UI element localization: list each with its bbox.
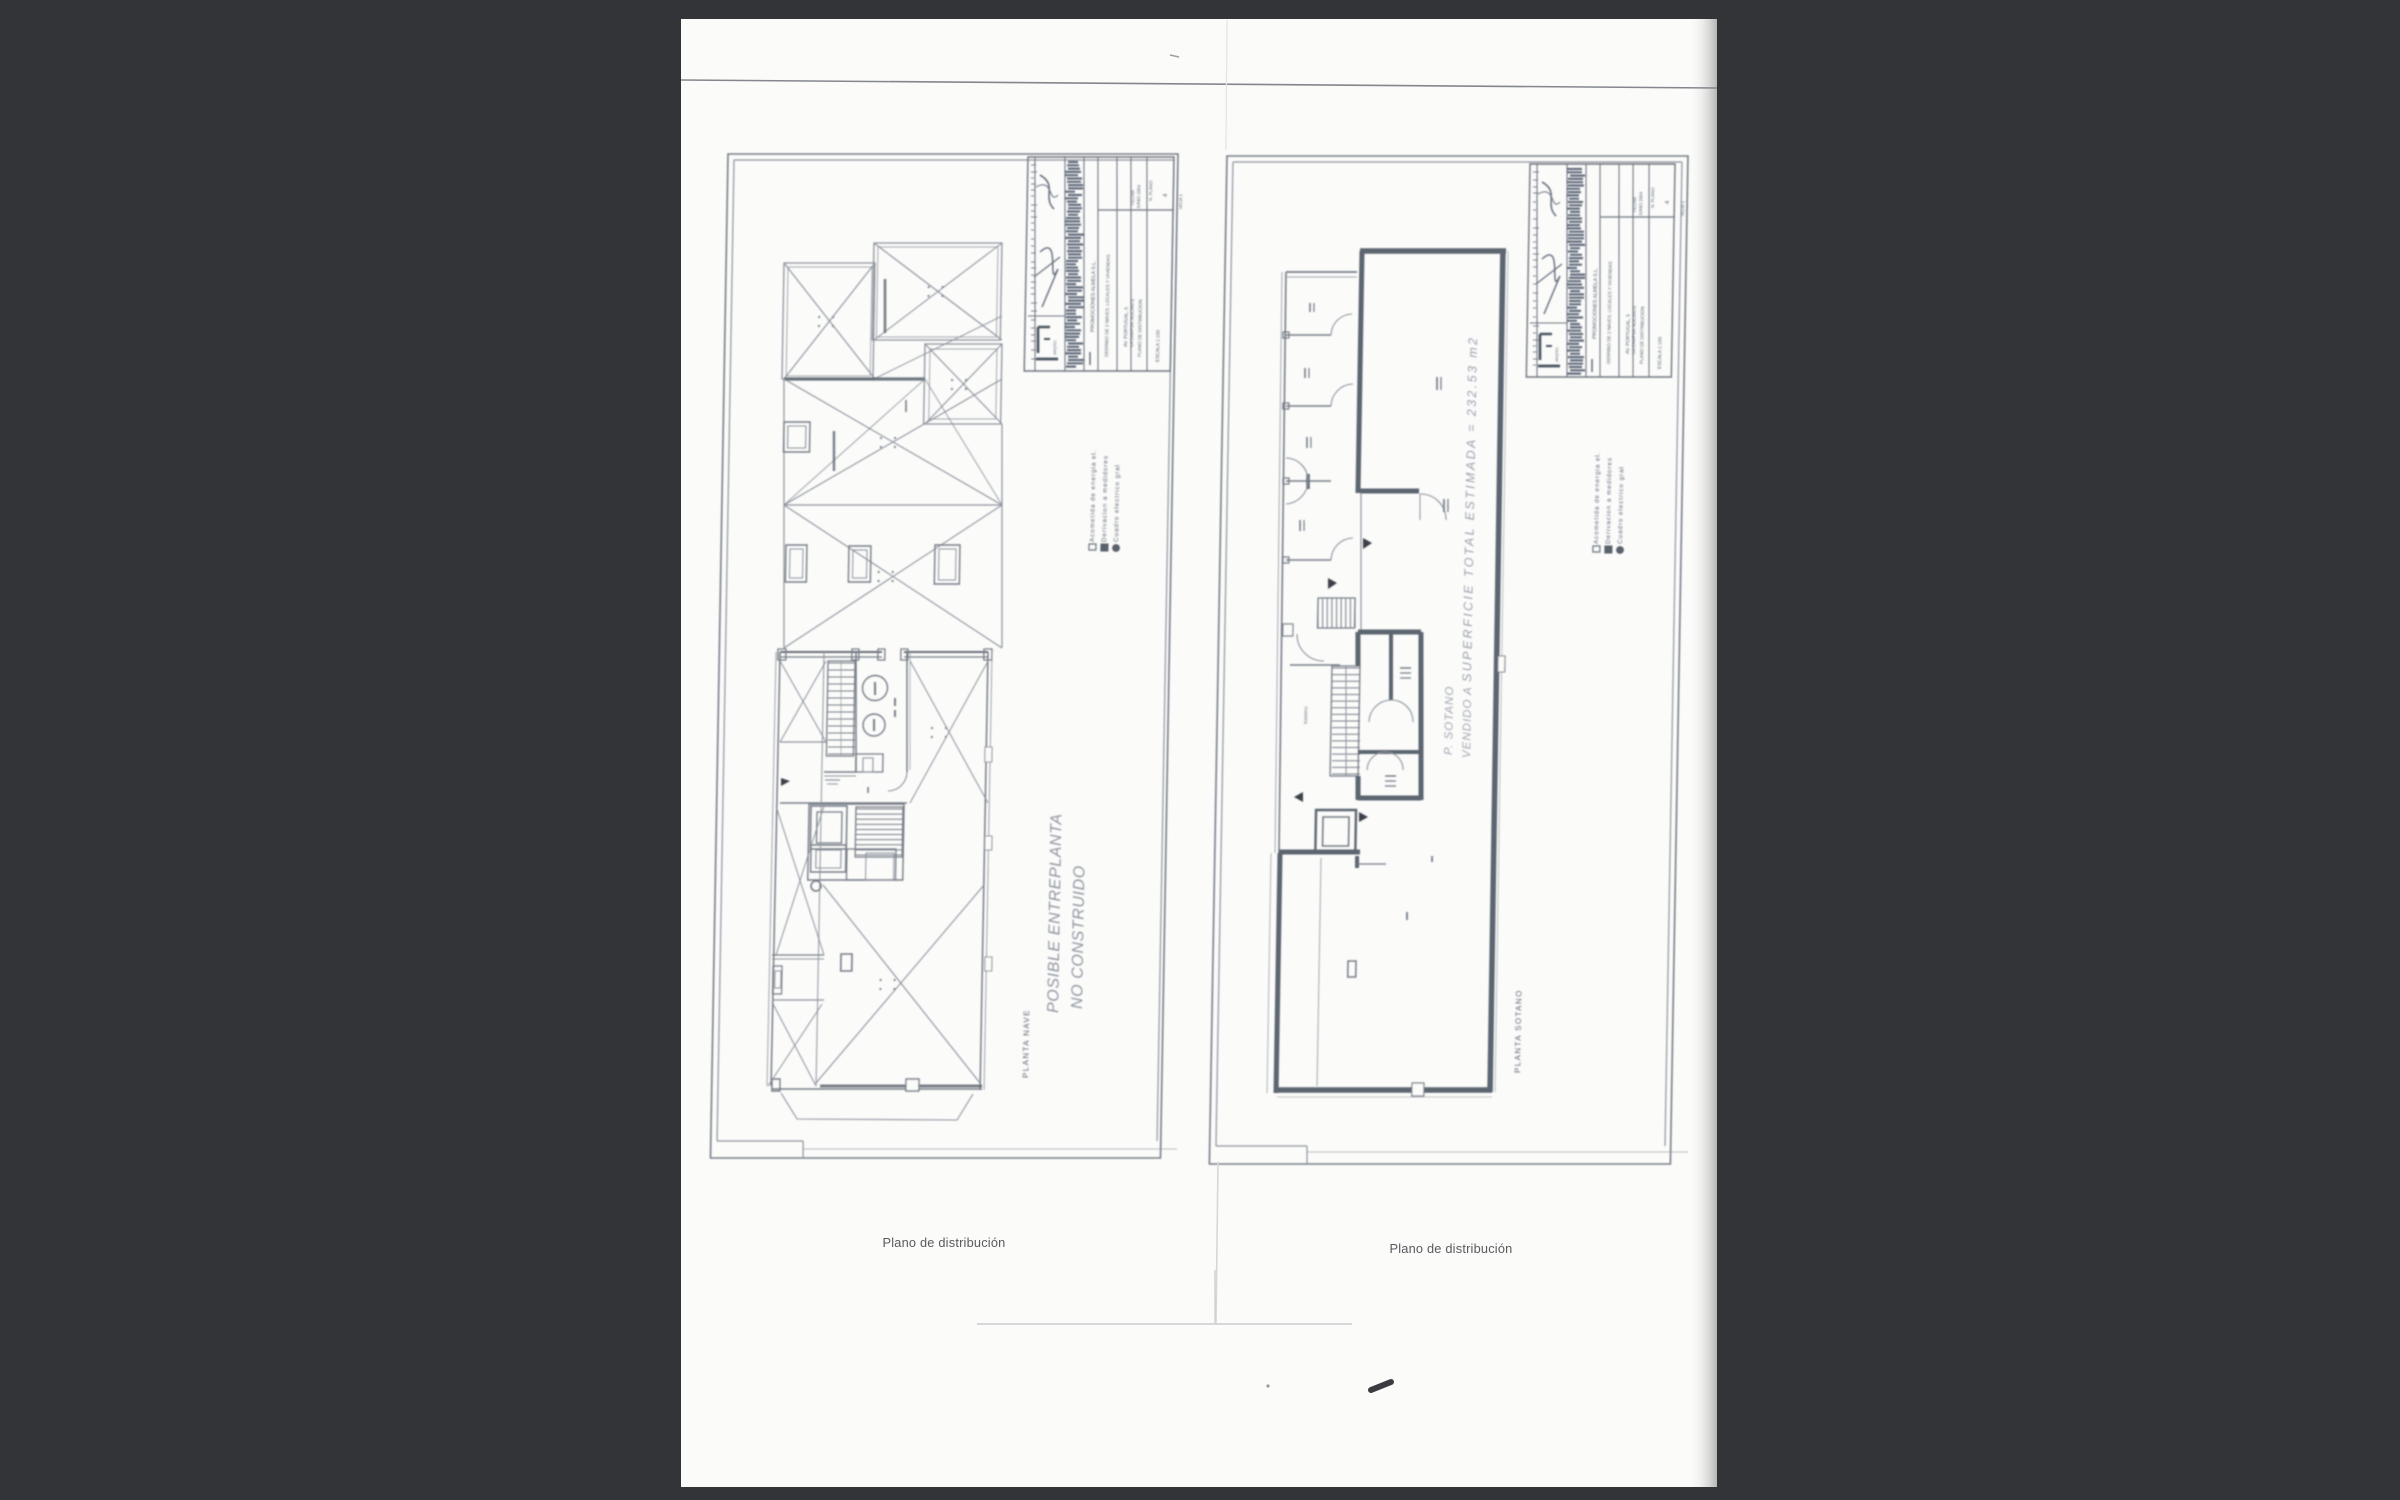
svg-text:LA CAMPSA. ALICANTE: LA CAMPSA. ALICANTE — [1631, 305, 1637, 354]
svg-text:POSIBLE ENTREPLANTA: POSIBLE ENTREPLANTA — [1045, 813, 1065, 1013]
svg-text:ESCALA 1:100: ESCALA 1:100 — [1657, 337, 1664, 369]
svg-text:N. PLANO: N. PLANO — [1650, 187, 1655, 208]
svg-text:ARQTEC: ARQTEC — [1555, 347, 1559, 362]
svg-text:trastero: trastero — [1303, 706, 1309, 724]
svg-text:FECHA: FECHA — [1130, 190, 1135, 205]
svg-text:Plano de distribución: Plano de distribución — [1389, 1241, 1512, 1256]
svg-text:HOJA 1: HOJA 1 — [1680, 200, 1685, 216]
svg-text:N. PLANO: N. PLANO — [1148, 180, 1153, 201]
svg-text:PLANO DE DISTRIBUCION: PLANO DE DISTRIBUCION — [1137, 300, 1143, 357]
svg-text:HOJA 1: HOJA 1 — [1178, 193, 1183, 209]
svg-text:ARQTEC: ARQTEC — [1053, 340, 1057, 355]
svg-text:FECHA: FECHA — [1632, 197, 1637, 212]
svg-text:Cuadro electrico gral: Cuadro electrico gral — [1617, 466, 1625, 544]
svg-text:JUNIO 2004: JUNIO 2004 — [1638, 191, 1643, 216]
svg-text:PLANO DE DISTRIBUCION: PLANO DE DISTRIBUCION — [1639, 307, 1645, 364]
svg-text:P. SOTANO: P. SOTANO — [1443, 686, 1456, 755]
svg-text:PLANTA SOTANO: PLANTA SOTANO — [1513, 989, 1523, 1073]
svg-text:JUNIO 2004: JUNIO 2004 — [1136, 184, 1141, 209]
svg-text:LA CAMPSA. ALICANTE: LA CAMPSA. ALICANTE — [1129, 298, 1135, 347]
svg-text:NO CONSTRUIDO: NO CONSTRUIDO — [1069, 865, 1089, 1009]
svg-text:VENDIDO A: VENDIDO A — [1461, 686, 1474, 758]
svg-text:PROMOCIONES ALMELA S.L.: PROMOCIONES ALMELA S.L. — [1090, 261, 1097, 332]
svg-text:PLANTA NAVE: PLANTA NAVE — [1021, 1009, 1031, 1078]
svg-text:ESCALA 1:100: ESCALA 1:100 — [1155, 330, 1162, 362]
svg-text:PROMOCIONES ALMELA S.L.: PROMOCIONES ALMELA S.L. — [1592, 268, 1599, 339]
svg-text:Plano de distribución: Plano de distribución — [882, 1235, 1005, 1250]
svg-text:Cuadro electrico gral: Cuadro electrico gral — [1113, 464, 1121, 542]
